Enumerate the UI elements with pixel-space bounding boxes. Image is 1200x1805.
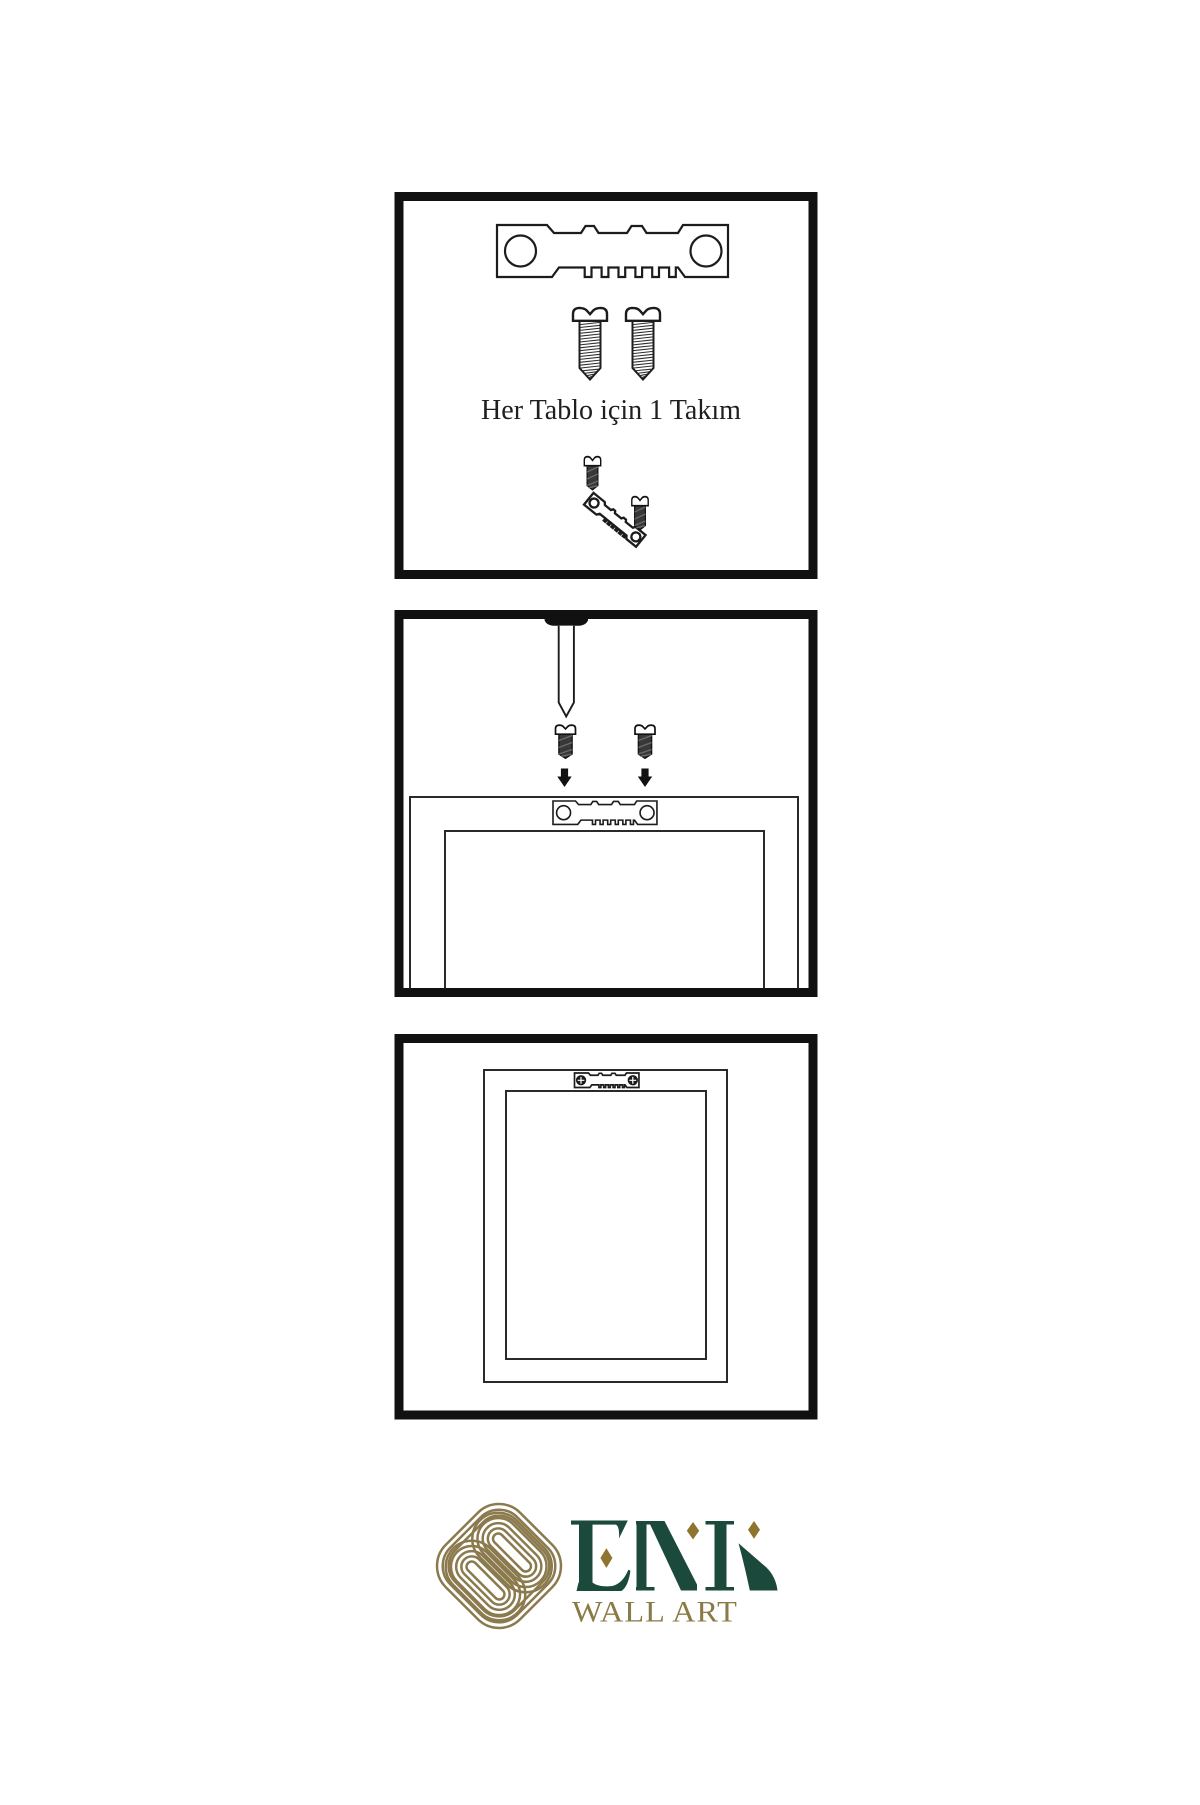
svg-text:Her Tablo için 1 Takım: Her Tablo için 1 Takım bbox=[481, 394, 741, 426]
svg-text:WALL ART: WALL ART bbox=[572, 1596, 738, 1629]
